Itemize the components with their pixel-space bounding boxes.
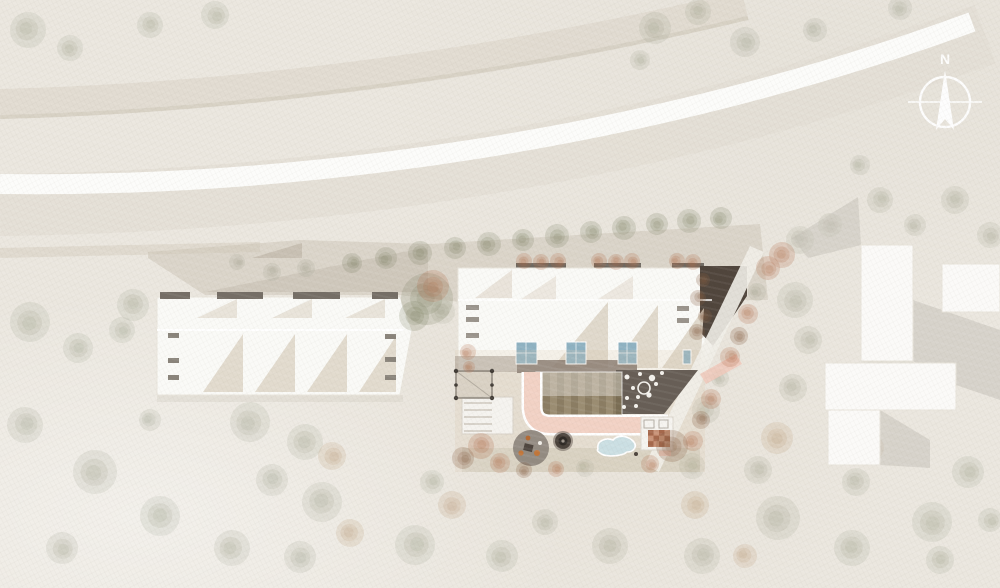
tree xyxy=(805,335,815,345)
tree xyxy=(518,235,526,243)
tree xyxy=(329,452,339,462)
tree xyxy=(854,162,861,169)
tree xyxy=(461,455,469,463)
tree xyxy=(86,465,101,480)
tree xyxy=(302,265,308,271)
patio-terrace xyxy=(513,430,549,466)
east-block-c-wing xyxy=(828,410,880,465)
tree xyxy=(850,476,860,486)
tree xyxy=(495,459,502,466)
tree xyxy=(637,57,644,64)
tree xyxy=(270,267,276,273)
tree xyxy=(809,25,817,33)
tree xyxy=(127,298,138,309)
tree xyxy=(686,216,694,224)
tree xyxy=(295,552,306,563)
tree xyxy=(224,542,237,555)
tree xyxy=(483,241,491,249)
tree xyxy=(119,326,128,335)
tree xyxy=(752,289,758,295)
tree xyxy=(687,438,694,445)
tree xyxy=(241,416,255,430)
tree xyxy=(613,258,619,264)
tree xyxy=(741,37,752,48)
east-buildings xyxy=(792,197,1000,468)
tree xyxy=(845,541,858,554)
tree xyxy=(540,518,549,527)
tree xyxy=(765,265,773,273)
west-rowhouse-shadow xyxy=(157,395,403,402)
tree xyxy=(410,537,424,551)
tree xyxy=(787,382,797,392)
tree xyxy=(410,311,421,322)
tree xyxy=(653,221,661,229)
tree xyxy=(73,343,84,354)
east-block-a xyxy=(861,245,913,361)
tree xyxy=(21,417,34,430)
tree xyxy=(463,351,469,357)
tree xyxy=(521,469,527,475)
tree xyxy=(789,295,802,308)
tree xyxy=(744,309,751,316)
tree xyxy=(427,282,438,293)
tree xyxy=(936,554,946,564)
parking-pad xyxy=(462,397,513,434)
tree xyxy=(495,552,506,563)
tree xyxy=(589,228,597,236)
tree xyxy=(429,477,437,485)
tree xyxy=(715,216,723,224)
tree xyxy=(987,232,996,241)
tree xyxy=(314,494,328,508)
tree xyxy=(381,256,389,264)
west-rowhouse xyxy=(157,292,412,402)
site-plan-canvas: N xyxy=(0,0,1000,588)
tree xyxy=(878,194,887,203)
tree xyxy=(910,222,918,230)
tree xyxy=(447,502,457,512)
tree xyxy=(595,258,601,264)
tree xyxy=(699,415,705,421)
tree xyxy=(144,415,152,423)
pergola-frame xyxy=(454,369,494,400)
tree xyxy=(648,22,659,33)
tree xyxy=(58,544,69,555)
tree xyxy=(453,243,461,251)
tree xyxy=(729,353,736,360)
compass-north-label: N xyxy=(940,51,950,67)
site-plan-drawing: N xyxy=(0,0,1000,588)
tree xyxy=(988,517,996,525)
tree xyxy=(618,222,626,230)
tree xyxy=(555,466,561,472)
tree xyxy=(146,20,155,29)
tree xyxy=(693,6,702,15)
tree xyxy=(768,511,783,526)
fountain xyxy=(553,431,573,451)
tree xyxy=(701,314,706,319)
tree xyxy=(153,508,167,522)
tree xyxy=(631,259,637,265)
tree xyxy=(604,540,617,553)
tree xyxy=(755,464,765,474)
east-block-b xyxy=(942,264,1000,312)
tree xyxy=(737,334,743,340)
striped-garden xyxy=(536,372,622,420)
east-block-c xyxy=(825,363,956,410)
tree xyxy=(694,329,700,335)
tree xyxy=(22,316,36,330)
tree xyxy=(20,22,33,35)
tree xyxy=(539,259,545,265)
tree xyxy=(351,259,358,266)
tree xyxy=(926,516,940,530)
tree xyxy=(477,440,486,449)
tree xyxy=(649,462,655,468)
tree xyxy=(298,436,311,449)
tree xyxy=(666,441,677,452)
tree xyxy=(697,294,703,300)
tree xyxy=(895,5,903,13)
tree xyxy=(521,259,527,265)
tree xyxy=(950,194,960,204)
tree xyxy=(212,12,222,22)
tree xyxy=(708,396,715,403)
tree xyxy=(672,258,678,264)
tree xyxy=(697,548,710,561)
tree xyxy=(965,466,976,477)
tree xyxy=(739,550,747,558)
tree xyxy=(771,433,782,444)
tree xyxy=(344,527,354,537)
tree xyxy=(65,44,74,53)
tree xyxy=(416,249,424,257)
tree xyxy=(692,500,702,510)
tree xyxy=(554,233,562,241)
tree xyxy=(701,278,706,283)
tree xyxy=(557,260,563,266)
pergola-shade-overlay xyxy=(536,372,622,396)
pool-ladder xyxy=(634,452,638,456)
tree xyxy=(236,260,242,266)
tree xyxy=(777,250,786,259)
terrain-layer xyxy=(0,5,985,302)
tree xyxy=(690,261,696,267)
tree xyxy=(466,365,470,369)
tree xyxy=(267,473,278,484)
